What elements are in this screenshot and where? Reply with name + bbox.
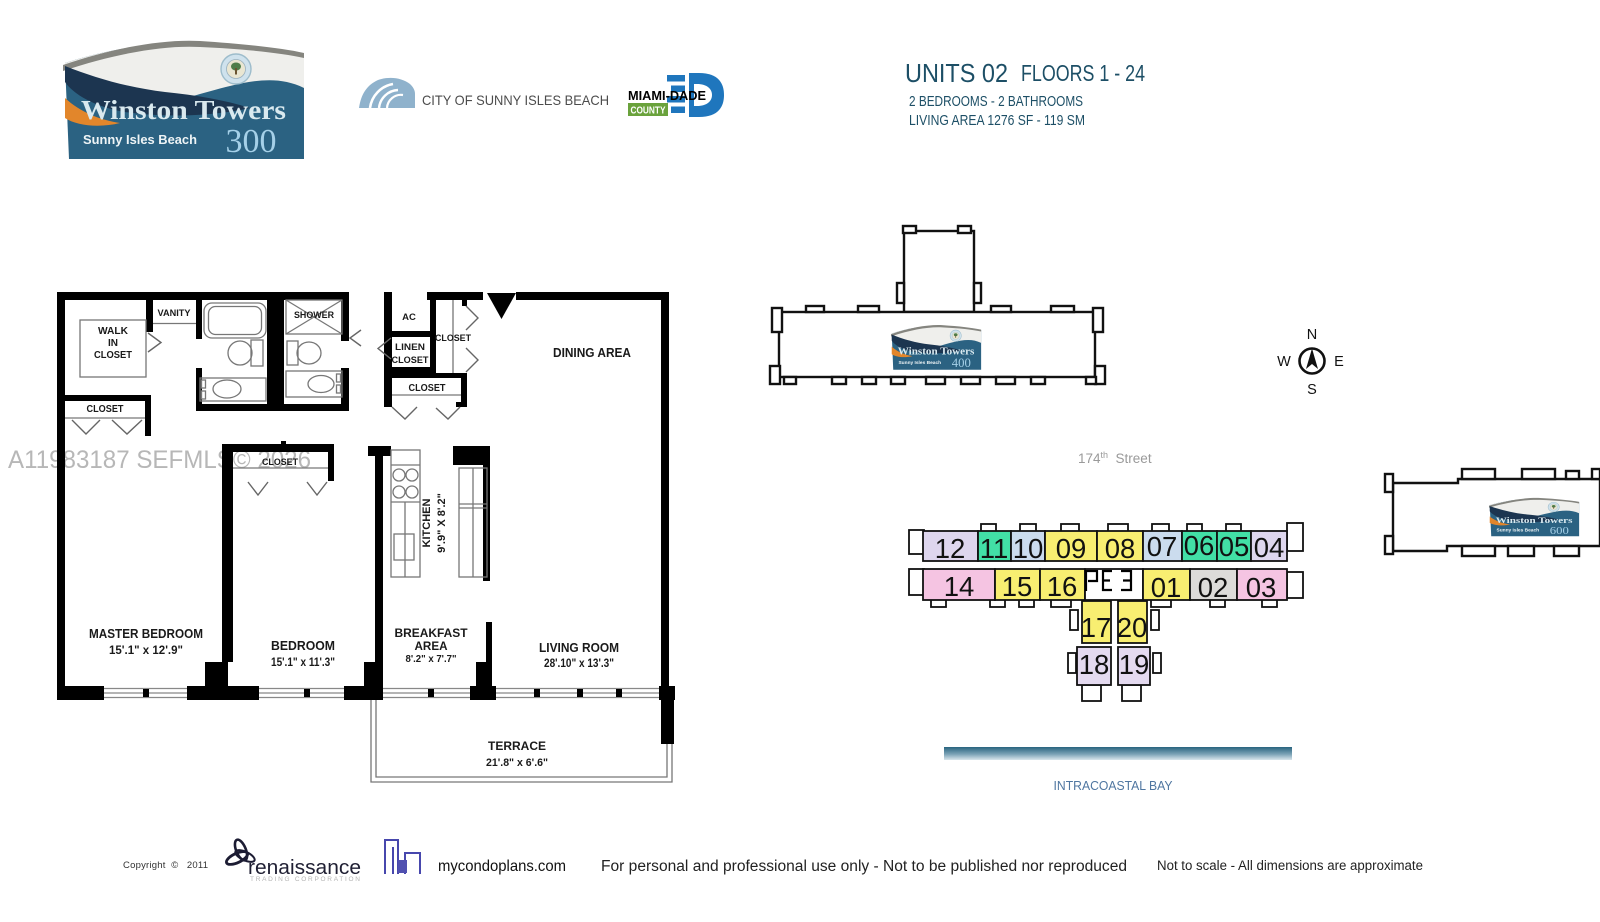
svg-text:AC: AC <box>402 312 416 323</box>
svg-text:LIVING ROOM: LIVING ROOM <box>539 641 619 655</box>
svg-text:CLOSET: CLOSET <box>409 383 446 394</box>
svg-text:CLOSET: CLOSET <box>94 350 132 361</box>
svg-text:mycondoplans.com: mycondoplans.com <box>438 858 566 875</box>
svg-text:CLOSET: CLOSET <box>262 457 298 468</box>
svg-text:IN: IN <box>108 338 118 349</box>
svg-text:For personal and professional: For personal and professional use only -… <box>601 858 1127 875</box>
svg-text:16: 16 <box>1047 571 1078 602</box>
svg-text:E: E <box>1334 354 1344 370</box>
svg-text:02: 02 <box>1198 572 1229 603</box>
svg-text:N: N <box>1307 327 1317 343</box>
svg-text:15: 15 <box>1002 571 1033 602</box>
svg-text:AREA: AREA <box>415 641 448 653</box>
svg-text:174th Street: 174th Street <box>1078 450 1152 466</box>
svg-text:17: 17 <box>1081 612 1112 643</box>
svg-text:18: 18 <box>1079 649 1110 680</box>
svg-text:CLOSET: CLOSET <box>87 404 124 415</box>
svg-text:07: 07 <box>1147 531 1178 562</box>
svg-text:11: 11 <box>980 533 1009 564</box>
svg-text:2 BEDROOMS - 2 BATHROOMS: 2 BEDROOMS - 2 BATHROOMS <box>909 93 1083 110</box>
svg-text:INTRACOASTAL BAY: INTRACOASTAL BAY <box>1054 778 1173 793</box>
svg-text:300: 300 <box>226 123 277 160</box>
svg-text:LINEN: LINEN <box>395 342 425 353</box>
svg-text:14: 14 <box>944 571 975 602</box>
svg-text:9'.9" X 8'.2": 9'.9" X 8'.2" <box>436 493 448 553</box>
svg-text:8'.2" x 7'.7": 8'.2" x 7'.7" <box>406 653 457 665</box>
svg-text:MASTER BEDROOM: MASTER BEDROOM <box>89 627 203 641</box>
svg-text:W: W <box>1277 354 1291 370</box>
svg-text:CLOSET: CLOSET <box>435 333 471 344</box>
svg-text:CLOSET: CLOSET <box>392 355 429 366</box>
svg-text:MIAMI-DADE: MIAMI-DADE <box>628 88 706 103</box>
svg-text:DINING AREA: DINING AREA <box>553 346 631 360</box>
svg-text:20: 20 <box>1117 612 1148 643</box>
svg-text:10: 10 <box>1013 533 1044 564</box>
svg-text:VANITY: VANITY <box>158 308 192 319</box>
svg-text:19: 19 <box>1119 649 1150 680</box>
svg-text:28'.10" x 13'.3": 28'.10" x 13'.3" <box>544 658 614 670</box>
svg-text:21'.8" x 6'.6": 21'.8" x 6'.6" <box>486 757 548 769</box>
svg-text:400: 400 <box>952 356 971 370</box>
svg-text:06: 06 <box>1184 530 1215 561</box>
svg-text:Not to scale - All dimensions: Not to scale - All dimensions are approx… <box>1157 858 1423 873</box>
svg-text:BREAKFAST: BREAKFAST <box>395 628 468 640</box>
svg-text:FLOORS 1 - 24: FLOORS 1 - 24 <box>1021 60 1145 86</box>
svg-text:SHOWER: SHOWER <box>294 310 334 321</box>
svg-text:LIVING AREA 1276 SF - 119 SM: LIVING AREA 1276 SF - 119 SM <box>909 112 1085 129</box>
svg-text:04: 04 <box>1254 532 1285 563</box>
svg-text:03: 03 <box>1246 572 1277 603</box>
svg-text:CITY OF SUNNY ISLES BEACH: CITY OF SUNNY ISLES BEACH <box>422 92 609 108</box>
svg-text:09: 09 <box>1056 533 1087 564</box>
svg-text:UNITS 02: UNITS 02 <box>905 58 1008 88</box>
svg-text:15'.1" x 11'.3": 15'.1" x 11'.3" <box>271 657 335 669</box>
svg-text:Copyright © 2011: Copyright © 2011 <box>123 860 208 871</box>
svg-text:KITCHEN: KITCHEN <box>421 499 433 548</box>
svg-text:S: S <box>1307 382 1317 398</box>
svg-text:WALK: WALK <box>98 326 129 337</box>
svg-text:15'.1" x 12'.9": 15'.1" x 12'.9" <box>109 645 183 657</box>
svg-text:05: 05 <box>1219 531 1250 562</box>
svg-text:BEDROOM: BEDROOM <box>271 639 335 653</box>
svg-text:600: 600 <box>1550 524 1569 537</box>
svg-text:12: 12 <box>935 533 966 564</box>
svg-text:TERRACE: TERRACE <box>488 739 546 753</box>
svg-text:01: 01 <box>1151 572 1182 603</box>
svg-text:08: 08 <box>1105 533 1136 564</box>
svg-text:COUNTY: COUNTY <box>631 105 666 117</box>
